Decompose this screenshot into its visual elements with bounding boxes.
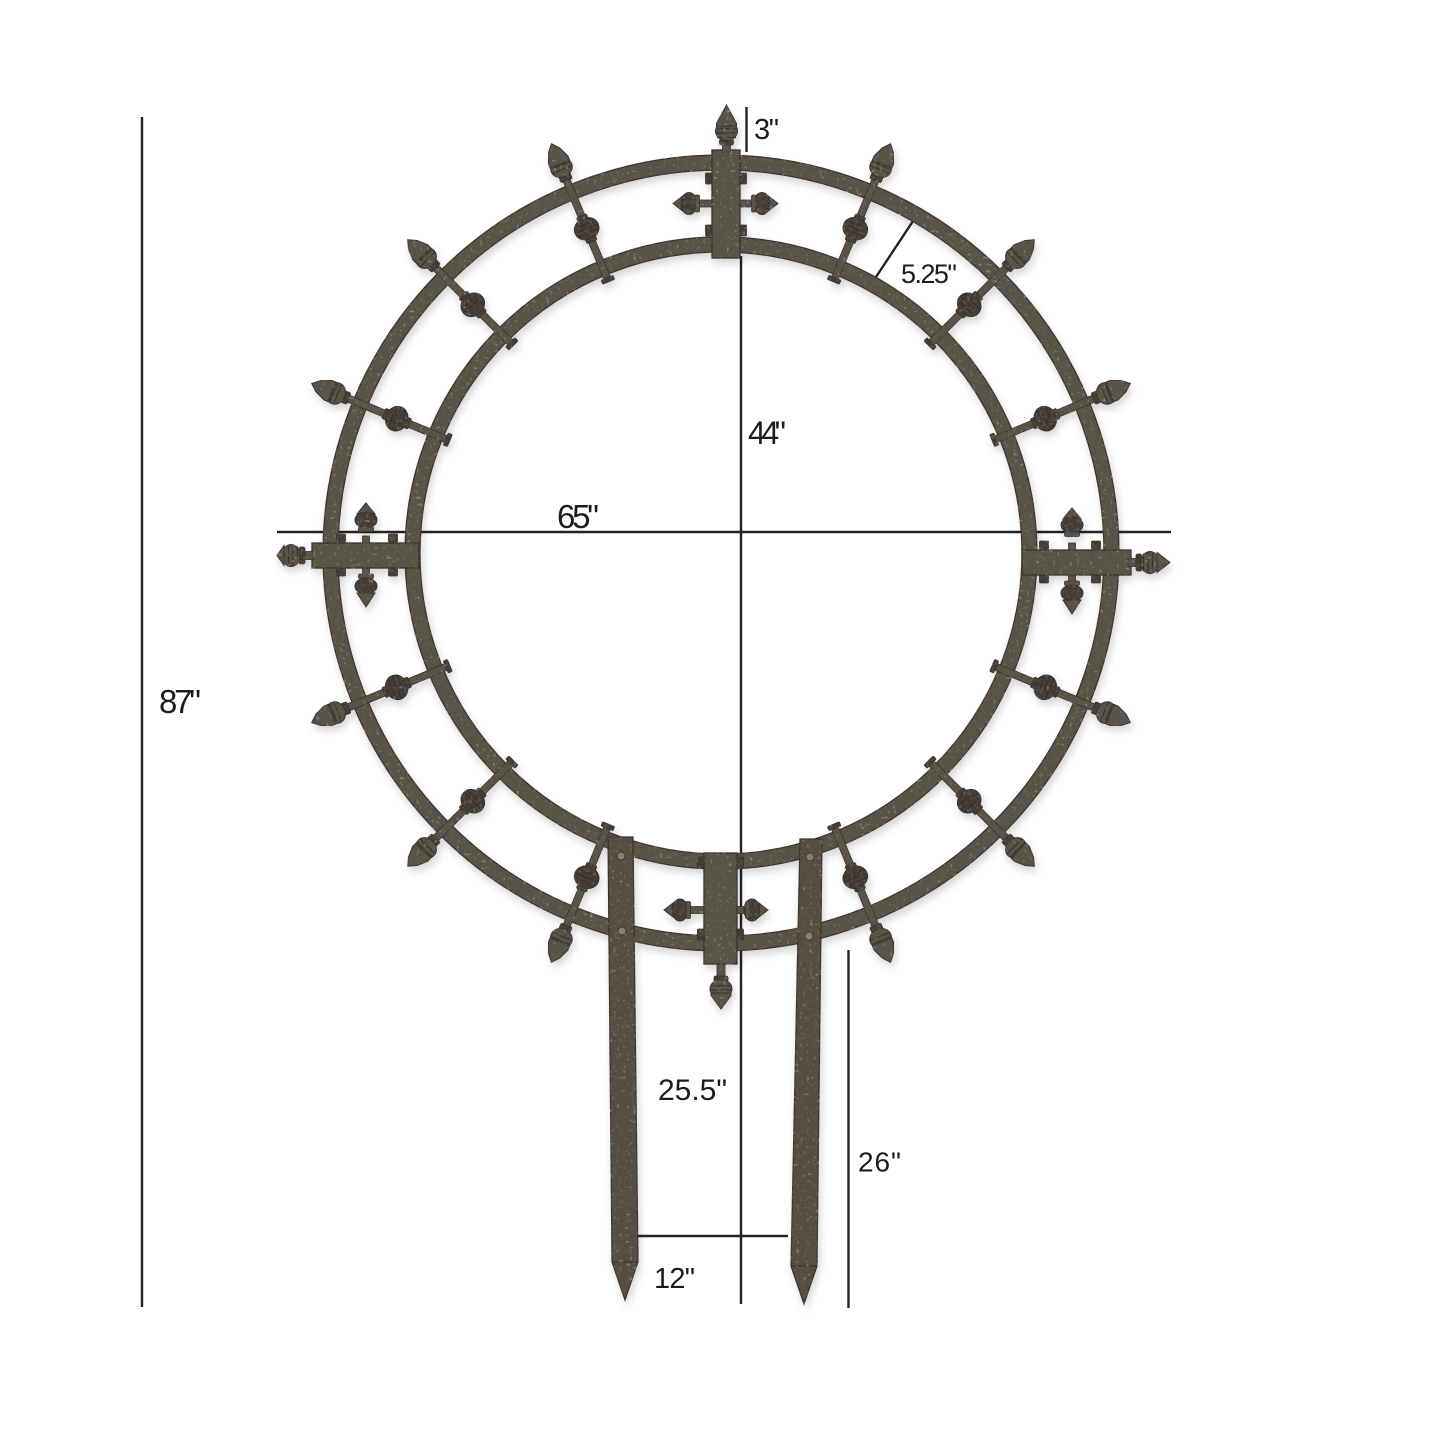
svg-text:3": 3" <box>754 114 779 146</box>
svg-text:65": 65" <box>557 498 599 535</box>
svg-text:25.5": 25.5" <box>658 1074 727 1107</box>
svg-text:87": 87" <box>159 683 201 720</box>
svg-text:26": 26" <box>858 1147 901 1178</box>
svg-text:12": 12" <box>654 1263 695 1295</box>
svg-text:44": 44" <box>748 415 786 451</box>
svg-text:5.25": 5.25" <box>901 259 957 289</box>
